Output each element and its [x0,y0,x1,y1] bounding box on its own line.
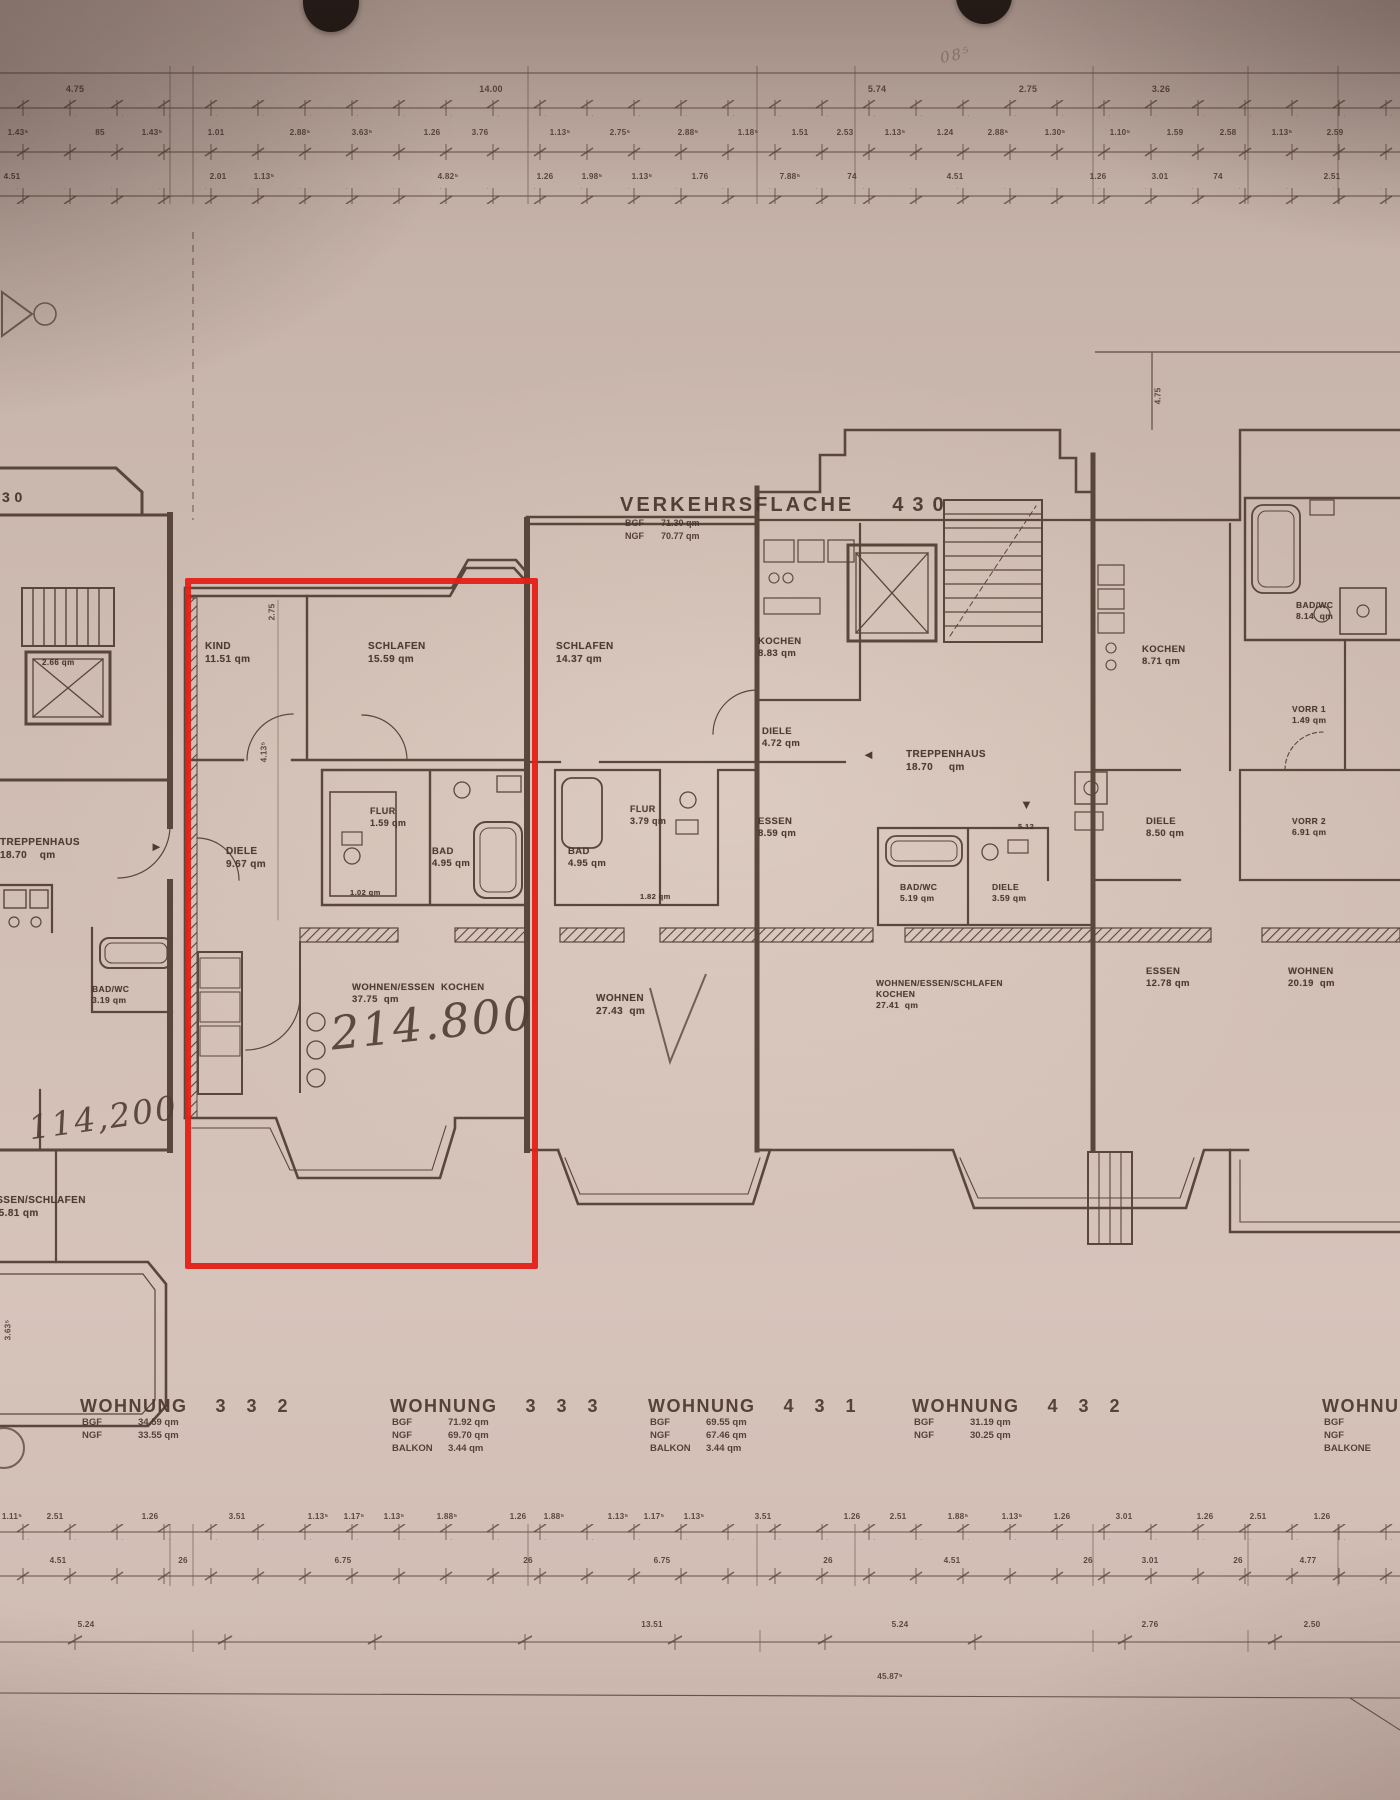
handwritten-price-114200: 114,200 [26,1088,180,1148]
handwritten-note-top: 08⁵ [938,43,972,67]
highlight-rectangle [185,578,538,1269]
floor-plan-document: VERKEHRSFLACHE430 BGF71.30 qm NGF70.77 q… [0,0,1400,1800]
